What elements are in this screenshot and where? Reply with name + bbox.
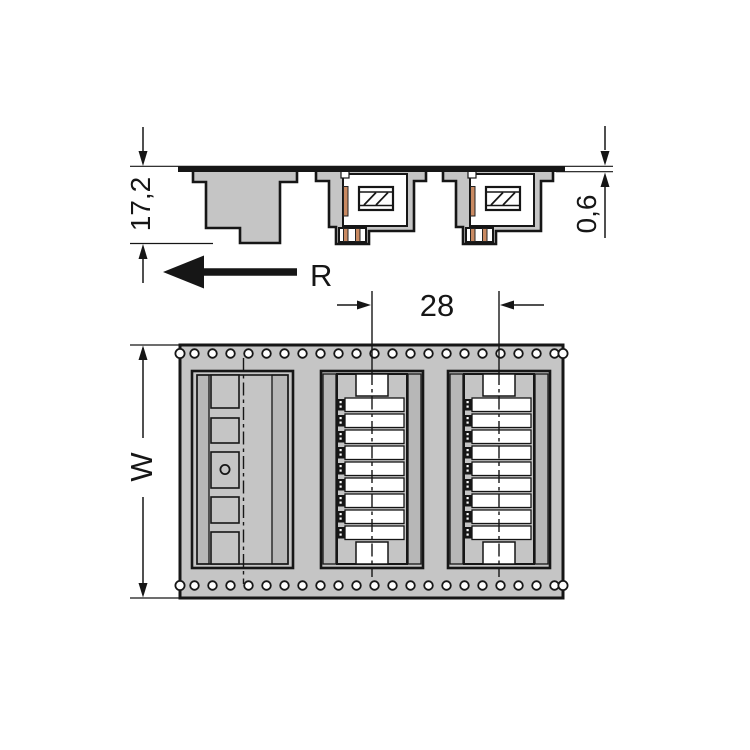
tape-cross-section bbox=[178, 167, 565, 173]
connector-pocket-side-2 bbox=[443, 169, 553, 244]
pocket-right-wall bbox=[272, 375, 288, 564]
dimension-width-W: W bbox=[124, 345, 181, 598]
unreel-label: R bbox=[310, 258, 332, 293]
side-view: 17,2 0,6 R bbox=[125, 126, 613, 293]
hatched-marking bbox=[359, 187, 393, 210]
pocket-right-wall bbox=[408, 374, 421, 564]
dim-label-0-6: 0,6 bbox=[571, 195, 602, 234]
solder-pin-2 bbox=[356, 229, 361, 242]
pocket-compartments bbox=[211, 375, 239, 564]
dimension-thickness-0-6: 0,6 bbox=[571, 126, 610, 238]
index-hole bbox=[220, 465, 229, 474]
connector-pocket-side bbox=[316, 169, 426, 244]
contact-pin bbox=[344, 187, 349, 217]
empty-pocket-side bbox=[193, 169, 297, 243]
empty-pocket-top bbox=[192, 358, 293, 584]
pocket-left-wall bbox=[197, 375, 209, 564]
dim-label-W: W bbox=[124, 452, 159, 482]
dimension-pitch-28: 28 bbox=[337, 288, 544, 323]
connector-slots bbox=[338, 398, 405, 540]
dim-label-28: 28 bbox=[420, 288, 454, 323]
dim-label-17-2: 17,2 bbox=[125, 177, 156, 232]
pocket-left-wall bbox=[323, 374, 336, 564]
top-view: W 28 bbox=[124, 288, 568, 598]
solder-pin-1 bbox=[344, 229, 349, 242]
arrow-head bbox=[163, 256, 204, 289]
unreel-direction-arrow: R bbox=[163, 256, 332, 294]
technical-drawing-canvas: 17,2 0,6 R bbox=[0, 0, 750, 750]
connector-pocket-top-2 bbox=[448, 291, 550, 577]
tape-and-reel-drawing: 17,2 0,6 R bbox=[0, 0, 750, 750]
connector-pocket-top bbox=[321, 291, 423, 577]
